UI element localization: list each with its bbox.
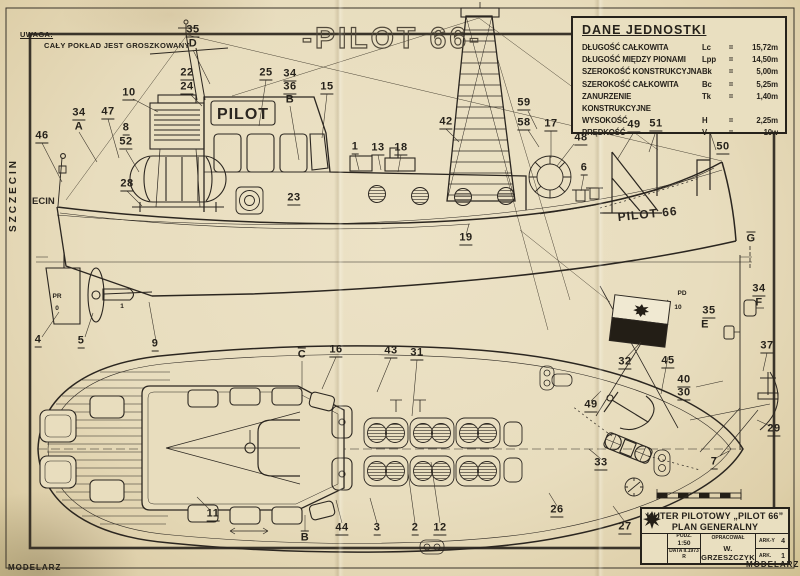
spec-cell: DŁUGOŚĆ MIĘDZY PIONAMI [582, 54, 702, 66]
part-label: 31 [410, 348, 423, 361]
sheet-number-cell: ARK-Y 4 ARK. 1 [756, 534, 788, 563]
part-label: 9 [152, 339, 159, 352]
spec-table-title: DANE JEDNOSTKI [582, 23, 778, 37]
part-label: 51 [649, 119, 662, 132]
part-label: 34 [752, 284, 765, 297]
part-label: D [189, 39, 197, 50]
part-label: 5 [78, 336, 85, 349]
spec-cell: ZANURZENIE KONSTRUKCYJNE [582, 91, 702, 115]
part-label: 15 [320, 82, 333, 95]
spec-cell: = [726, 115, 736, 127]
spec-cell: Bc [702, 79, 726, 91]
part-label: 7 [711, 457, 718, 470]
part-label: 50 [716, 142, 729, 155]
part-label: 30 [677, 388, 690, 401]
spec-cell: = [726, 66, 736, 78]
part-label: 11 [207, 509, 220, 522]
sheet-label: ARK. [759, 553, 771, 559]
port-name-vertical: SZCZECIN [8, 122, 19, 232]
note-heading: UWAGA: [20, 30, 190, 39]
polish-flag [609, 295, 670, 347]
part-label: 22 [180, 68, 193, 81]
part-label: B [286, 95, 294, 106]
date-value: II.1973 R [682, 548, 699, 560]
part-label: 16 [329, 345, 342, 358]
spec-cell: 5,00m [736, 66, 778, 78]
spec-row: PRĘDKOŚĆV=10w [582, 127, 778, 139]
author-cell: OPRACOWAŁ W. GRZESZCZYK [701, 534, 756, 563]
spec-cell: 15,72m [736, 42, 778, 54]
author-label: OPRACOWAŁ [711, 535, 744, 541]
stern-name-text: ECIN [32, 196, 55, 207]
station-mark: 1 [120, 304, 124, 311]
spec-cell: = [726, 42, 736, 54]
spec-row: ZANURZENIE KONSTRUKCYJNETk=1,40m [582, 91, 778, 115]
part-label: 8 [123, 123, 130, 136]
part-label: 18 [394, 143, 407, 156]
part-label: 10 [122, 88, 135, 101]
part-label: 49 [627, 120, 640, 133]
part-label: 23 [287, 193, 300, 206]
spec-cell: = [726, 91, 736, 115]
nav-lamp-e [724, 326, 734, 339]
bow-name-text: PILOT 66 [617, 204, 678, 224]
wheelhouse-sign-text: PILOT [217, 106, 269, 123]
part-label: 35 [702, 306, 715, 319]
sheets-label: ARK-Y [759, 538, 775, 544]
spec-cell: Tk [702, 91, 726, 115]
part-label: 17 [544, 119, 557, 132]
part-label: 6 [581, 163, 588, 176]
spec-cell: Lpp [702, 54, 726, 66]
title-block-line1: KUTER PILOTOWY „PILOT 66” [642, 511, 788, 522]
spec-row: DŁUGOŚĆ CAŁKOWITALc=15,72m [582, 42, 778, 54]
part-label: 44 [335, 523, 348, 536]
part-label: 27 [618, 522, 631, 535]
part-label: 33 [594, 458, 607, 471]
part-label: 29 [767, 424, 780, 437]
spec-cell: V [702, 127, 726, 139]
part-label: C [298, 348, 306, 361]
part-label: 52 [119, 137, 132, 150]
rudder [46, 252, 80, 324]
part-label: 48 [574, 133, 587, 146]
spec-table: DANE JEDNOSTKI DŁUGOŚĆ CAŁKOWITALc=15,72… [571, 16, 787, 134]
life-raft-cylinder [130, 156, 226, 212]
blueprint-sheet: PILOT PILOT 66 ECIN [0, 0, 800, 576]
part-label: 32 [618, 357, 631, 370]
part-label: 42 [439, 117, 452, 130]
spec-cell: = [726, 54, 736, 66]
spec-row: WYSOKOŚĆH=2,25m [582, 115, 778, 127]
anchor-icon [604, 392, 654, 430]
part-label: 47 [101, 107, 114, 120]
station-mark: PR [52, 294, 61, 301]
eagle-emblem-icon [642, 534, 668, 563]
spec-cell: Bk [702, 66, 726, 78]
portholes [369, 186, 515, 206]
part-label: 59 [517, 98, 530, 111]
cabin-roof-plan [142, 386, 352, 534]
part-label: F [755, 298, 762, 309]
part-label: 45 [661, 356, 674, 369]
part-label: G [746, 232, 755, 245]
spec-cell: = [726, 127, 736, 139]
spec-row: DŁUGOŚĆ MIĘDZY PIONAMILpp=14,50m [582, 54, 778, 66]
sheet-value: 1 [781, 553, 785, 560]
part-label: 26 [550, 505, 563, 518]
sheet-title: -PILOT 66- [282, 22, 502, 56]
part-label: 35 [186, 25, 199, 38]
propeller [88, 268, 152, 322]
part-label: 3 [374, 523, 381, 536]
part-label: B [301, 531, 309, 544]
note-text: CAŁY POKŁAD JEST GROSZKOWANY [44, 41, 190, 50]
deck-note: UWAGA: CAŁY POKŁAD JEST GROSZKOWANY [20, 30, 190, 50]
spec-cell: 5,25m [736, 79, 778, 91]
scale-label: PODZ. [676, 533, 691, 539]
spec-cell: 10w [736, 127, 778, 139]
title-block-heading: KUTER PILOTOWY „PILOT 66” PLAN GENERALNY [642, 509, 788, 534]
part-label: A [75, 122, 83, 133]
part-label: 49 [584, 400, 597, 413]
title-block-line2: PLAN GENERALNY [642, 522, 788, 533]
plan-view-drawing [38, 346, 743, 554]
spec-cell: DŁUGOŚĆ CAŁKOWITA [582, 42, 702, 54]
rope-reel [529, 156, 571, 198]
spec-row: SZEROKOŚĆ KONSTRUKCYJNABk=5,00m [582, 66, 778, 78]
station-mark: 10 [674, 305, 681, 312]
part-label: 1 [352, 142, 359, 155]
station-mark: PD [677, 291, 686, 298]
spec-cell: SZEROKOŚĆ CAŁKOWITA [582, 79, 702, 91]
title-block: KUTER PILOTOWY „PILOT 66” PLAN GENERALNY… [640, 507, 790, 565]
skylights [364, 400, 522, 486]
spec-cell: WYSOKOŚĆ [582, 115, 702, 127]
part-label: 43 [384, 346, 397, 359]
part-label: 13 [371, 143, 384, 156]
nav-lamp-f [744, 300, 756, 316]
spec-cell: 1,40m [736, 91, 778, 115]
part-label: 19 [459, 233, 472, 246]
spec-cell: SZEROKOŚĆ KONSTRUKCYJNA [582, 66, 702, 78]
spec-table-rows: DŁUGOŚĆ CAŁKOWITALc=15,72mDŁUGOŚĆ MIĘDZY… [582, 42, 778, 140]
spec-cell: = [726, 79, 736, 91]
part-label: 34 [72, 108, 85, 121]
sheets-value: 4 [781, 538, 785, 545]
life-ring [236, 187, 263, 214]
scale-value: 1:50 [668, 540, 700, 547]
part-label: 37 [760, 341, 773, 354]
spec-cell: 14,50m [736, 54, 778, 66]
station-mark: 0 [55, 306, 59, 313]
part-label: 2 [412, 523, 419, 536]
part-label: 4 [35, 335, 42, 348]
publisher-mark-right: MODELARZ [746, 560, 799, 569]
spec-cell: PRĘDKOŚĆ [582, 127, 702, 139]
anchor-windlass [603, 432, 653, 465]
spec-cell: 2,25m [736, 115, 778, 127]
scale-date-cell: PODZ. 1:50 DATA II.1973 R [668, 534, 701, 563]
date-label: DATA [669, 548, 682, 554]
part-label: 58 [517, 118, 530, 131]
part-label: 24 [180, 82, 193, 95]
spec-cell: Lc [702, 42, 726, 54]
part-label: 46 [35, 131, 48, 144]
part-label: 25 [259, 68, 272, 81]
scale-bar [657, 489, 741, 500]
part-label: 28 [120, 179, 133, 192]
spec-row: SZEROKOŚĆ CAŁKOWITABc=5,25m [582, 79, 778, 91]
publisher-mark-left: MODELARZ [8, 563, 61, 572]
part-label: 12 [433, 523, 446, 536]
compass-icon [625, 478, 643, 496]
spec-cell: H [702, 115, 726, 127]
part-label: E [701, 320, 709, 331]
